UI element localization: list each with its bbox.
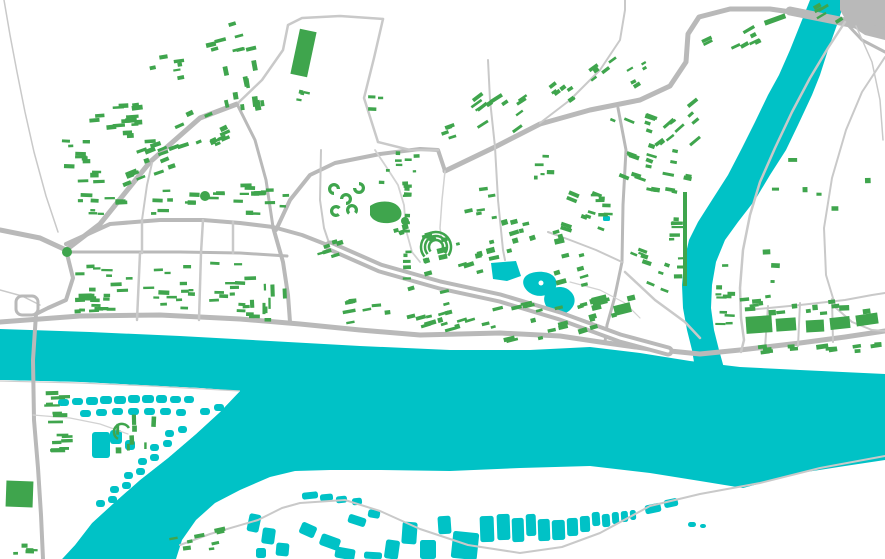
map-viewport[interactable] [0, 0, 885, 559]
map-canvas[interactable] [0, 0, 885, 559]
